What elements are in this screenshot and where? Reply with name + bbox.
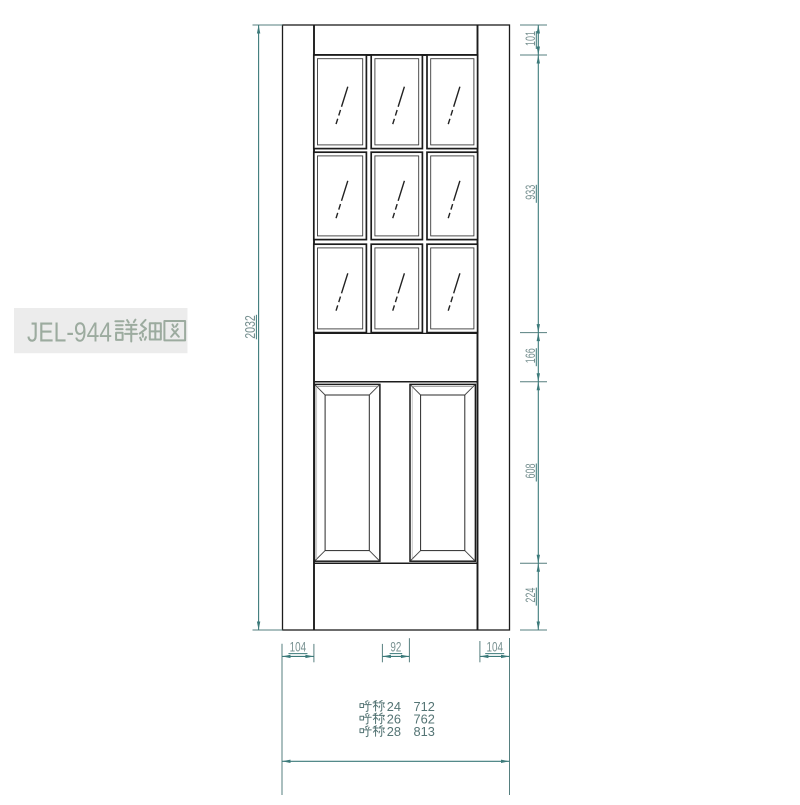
svg-text:28: 28 — [387, 724, 401, 739]
svg-text:608: 608 — [522, 463, 538, 478]
svg-text:JEL-944: JEL-944 — [27, 316, 112, 347]
svg-text:104: 104 — [290, 639, 307, 655]
svg-text:104: 104 — [486, 639, 503, 655]
svg-text:224: 224 — [522, 587, 538, 602]
svg-text:101: 101 — [522, 31, 538, 46]
svg-text:933: 933 — [522, 185, 538, 200]
svg-text:92: 92 — [390, 639, 401, 655]
svg-text:813: 813 — [414, 724, 435, 739]
svg-text:166: 166 — [522, 348, 538, 363]
